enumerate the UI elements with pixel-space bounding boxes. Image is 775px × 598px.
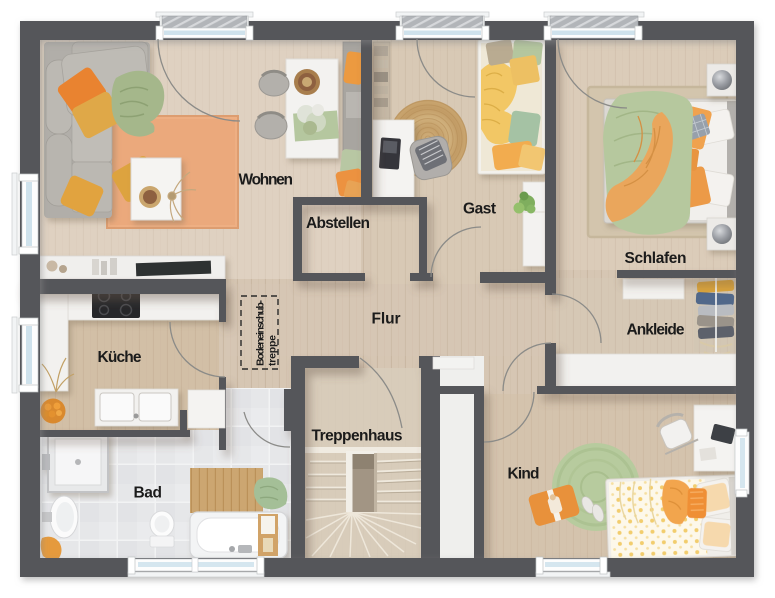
svg-text:Gast: Gast bbox=[463, 201, 496, 218]
svg-text:Kind: Kind bbox=[508, 466, 540, 483]
svg-text:Bad: Bad bbox=[134, 485, 163, 502]
svg-text:Treppenhaus: Treppenhaus bbox=[312, 428, 403, 445]
svg-text:Wohnen: Wohnen bbox=[239, 172, 294, 189]
svg-text:Abstellen: Abstellen bbox=[306, 215, 370, 232]
svg-text:Schlafen: Schlafen bbox=[625, 250, 687, 267]
svg-text:Ankleide: Ankleide bbox=[627, 322, 685, 339]
svg-text:Küche: Küche bbox=[98, 349, 142, 366]
svg-text:treppe: treppe bbox=[267, 335, 279, 366]
svg-text:Flur: Flur bbox=[372, 311, 401, 328]
svg-text:Bodeneinschub-: Bodeneinschub- bbox=[255, 300, 267, 367]
